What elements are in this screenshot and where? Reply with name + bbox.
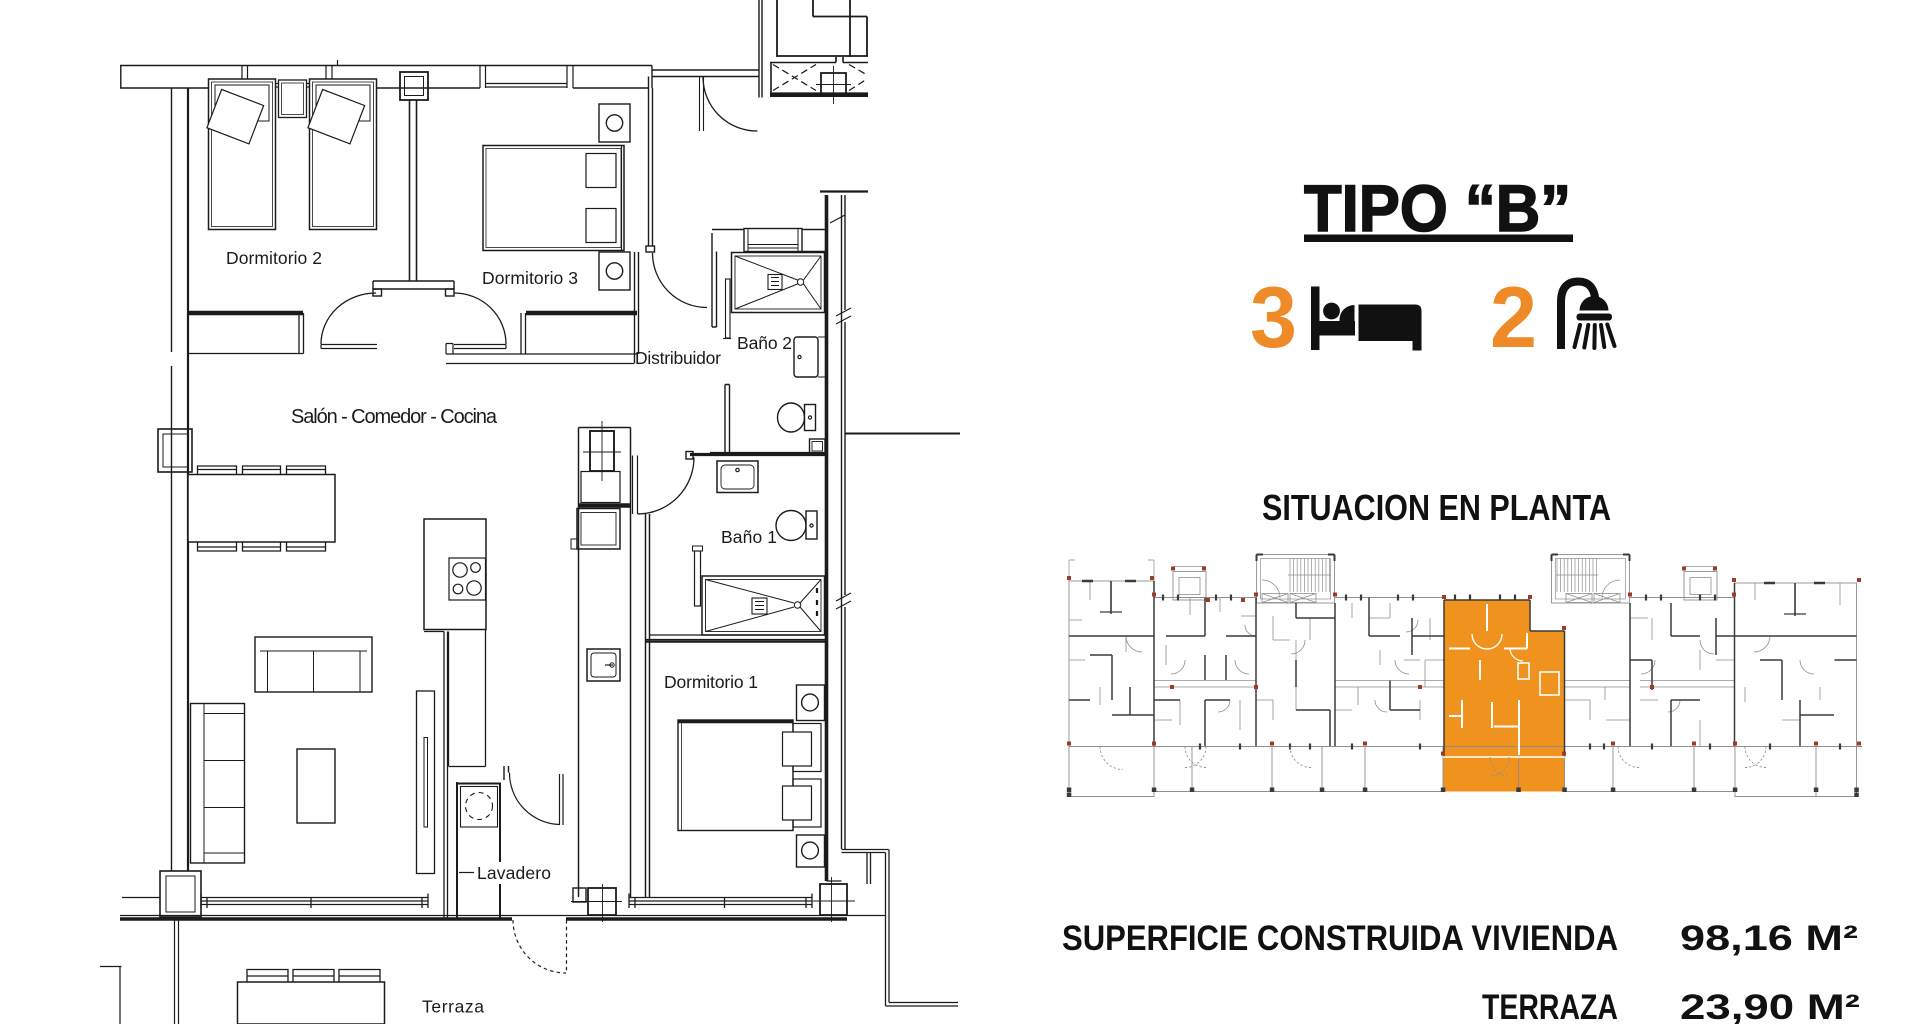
svg-text:2: 2	[1490, 270, 1537, 366]
svg-text:Dormitorio 2: Dormitorio 2	[226, 248, 322, 268]
svg-text:Baño 1: Baño 1	[721, 527, 777, 547]
svg-text:Dormitorio 3: Dormitorio 3	[482, 268, 578, 288]
svg-text:Salón - Comedor - Cocina: Salón - Comedor - Cocina	[291, 406, 498, 428]
svg-text:98,16 M²: 98,16 M²	[1680, 919, 1858, 958]
svg-text:3: 3	[1250, 270, 1297, 366]
svg-text:SITUACION EN PLANTA: SITUACION EN PLANTA	[1262, 487, 1611, 528]
svg-text:Lavadero: Lavadero	[477, 863, 551, 883]
svg-text:SUPERFICIE CONSTRUIDA VIVIENDA: SUPERFICIE CONSTRUIDA VIVIENDA	[1062, 919, 1618, 958]
svg-text:TERRAZA: TERRAZA	[1482, 988, 1618, 1024]
svg-text:Terraza: Terraza	[422, 997, 484, 1017]
svg-text:23,90 M²: 23,90 M²	[1680, 988, 1860, 1024]
svg-text:TIPO “B”: TIPO “B”	[1304, 171, 1571, 245]
svg-text:Baño 2: Baño 2	[737, 333, 792, 353]
svg-text:Dormitorio 1: Dormitorio 1	[664, 672, 758, 692]
svg-text:Distribuidor: Distribuidor	[635, 348, 721, 368]
